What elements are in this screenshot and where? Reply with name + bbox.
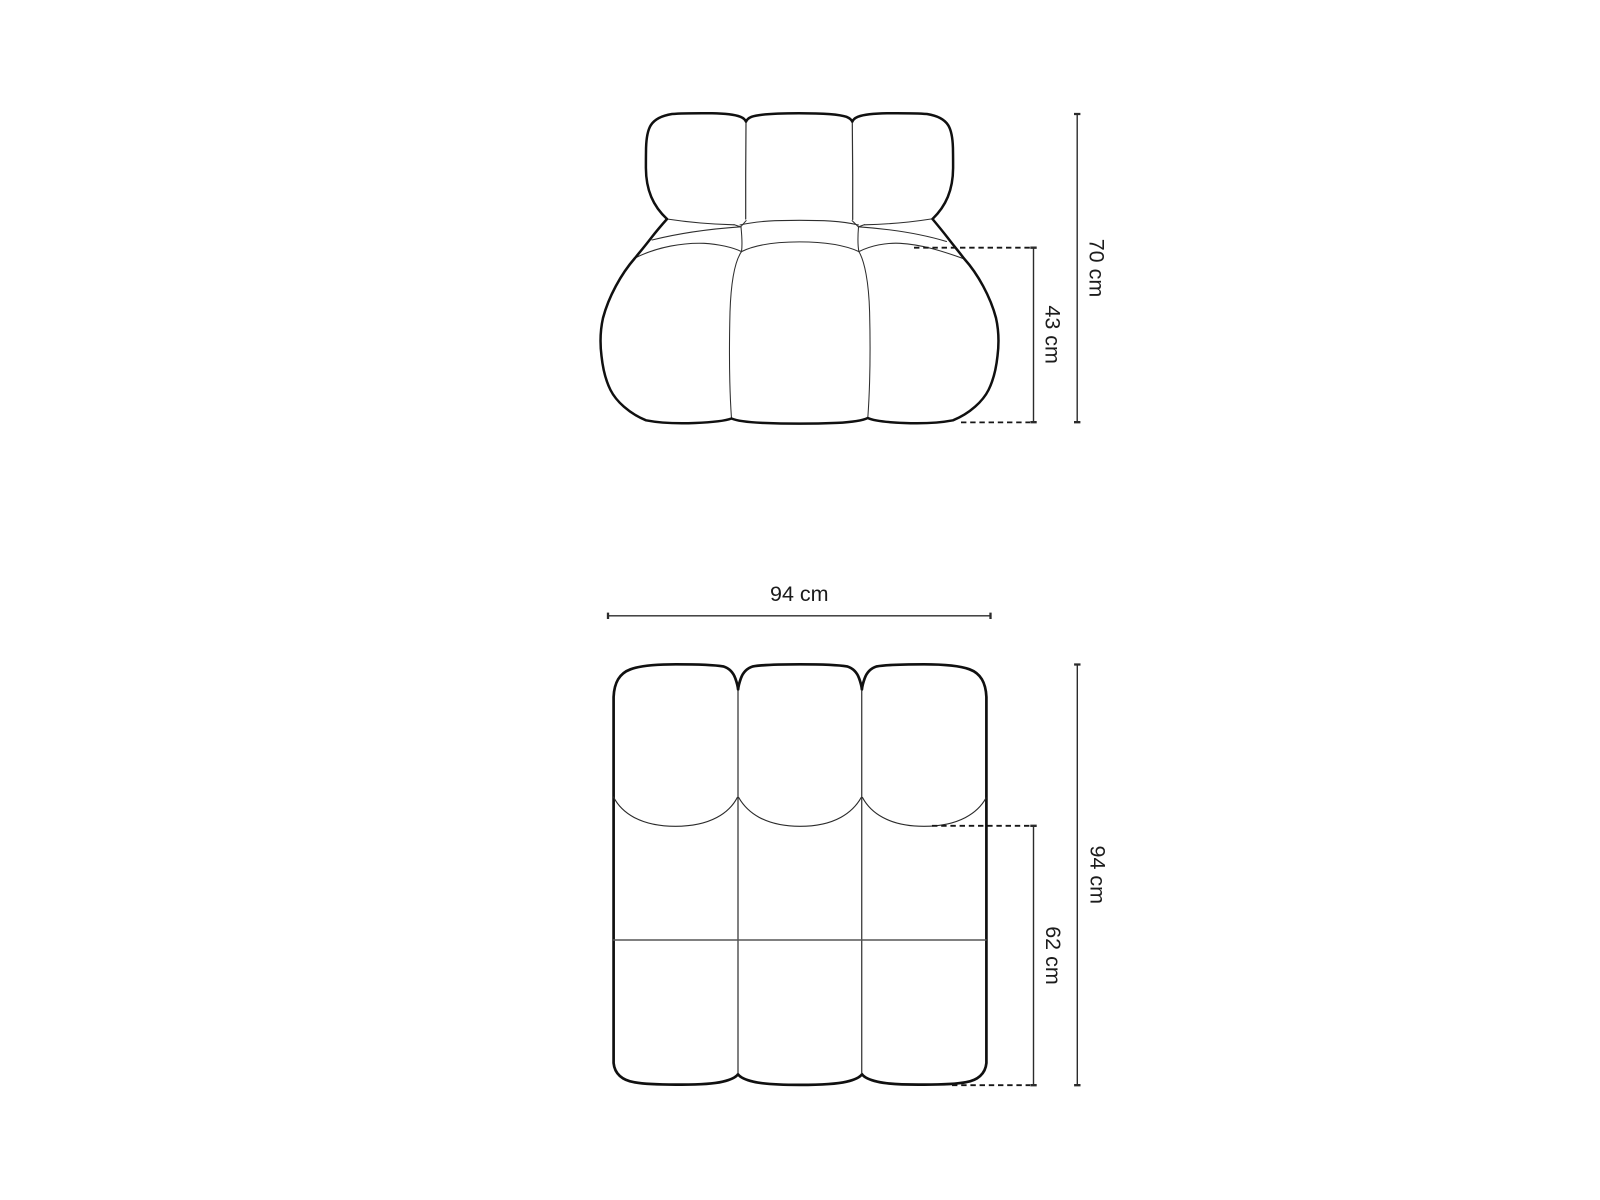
svg-text:70 cm: 70 cm — [1085, 239, 1109, 298]
svg-text:94 cm: 94 cm — [770, 582, 829, 606]
svg-text:62 cm: 62 cm — [1041, 926, 1065, 985]
svg-text:43 cm: 43 cm — [1041, 305, 1065, 364]
svg-text:94 cm: 94 cm — [1085, 846, 1109, 905]
